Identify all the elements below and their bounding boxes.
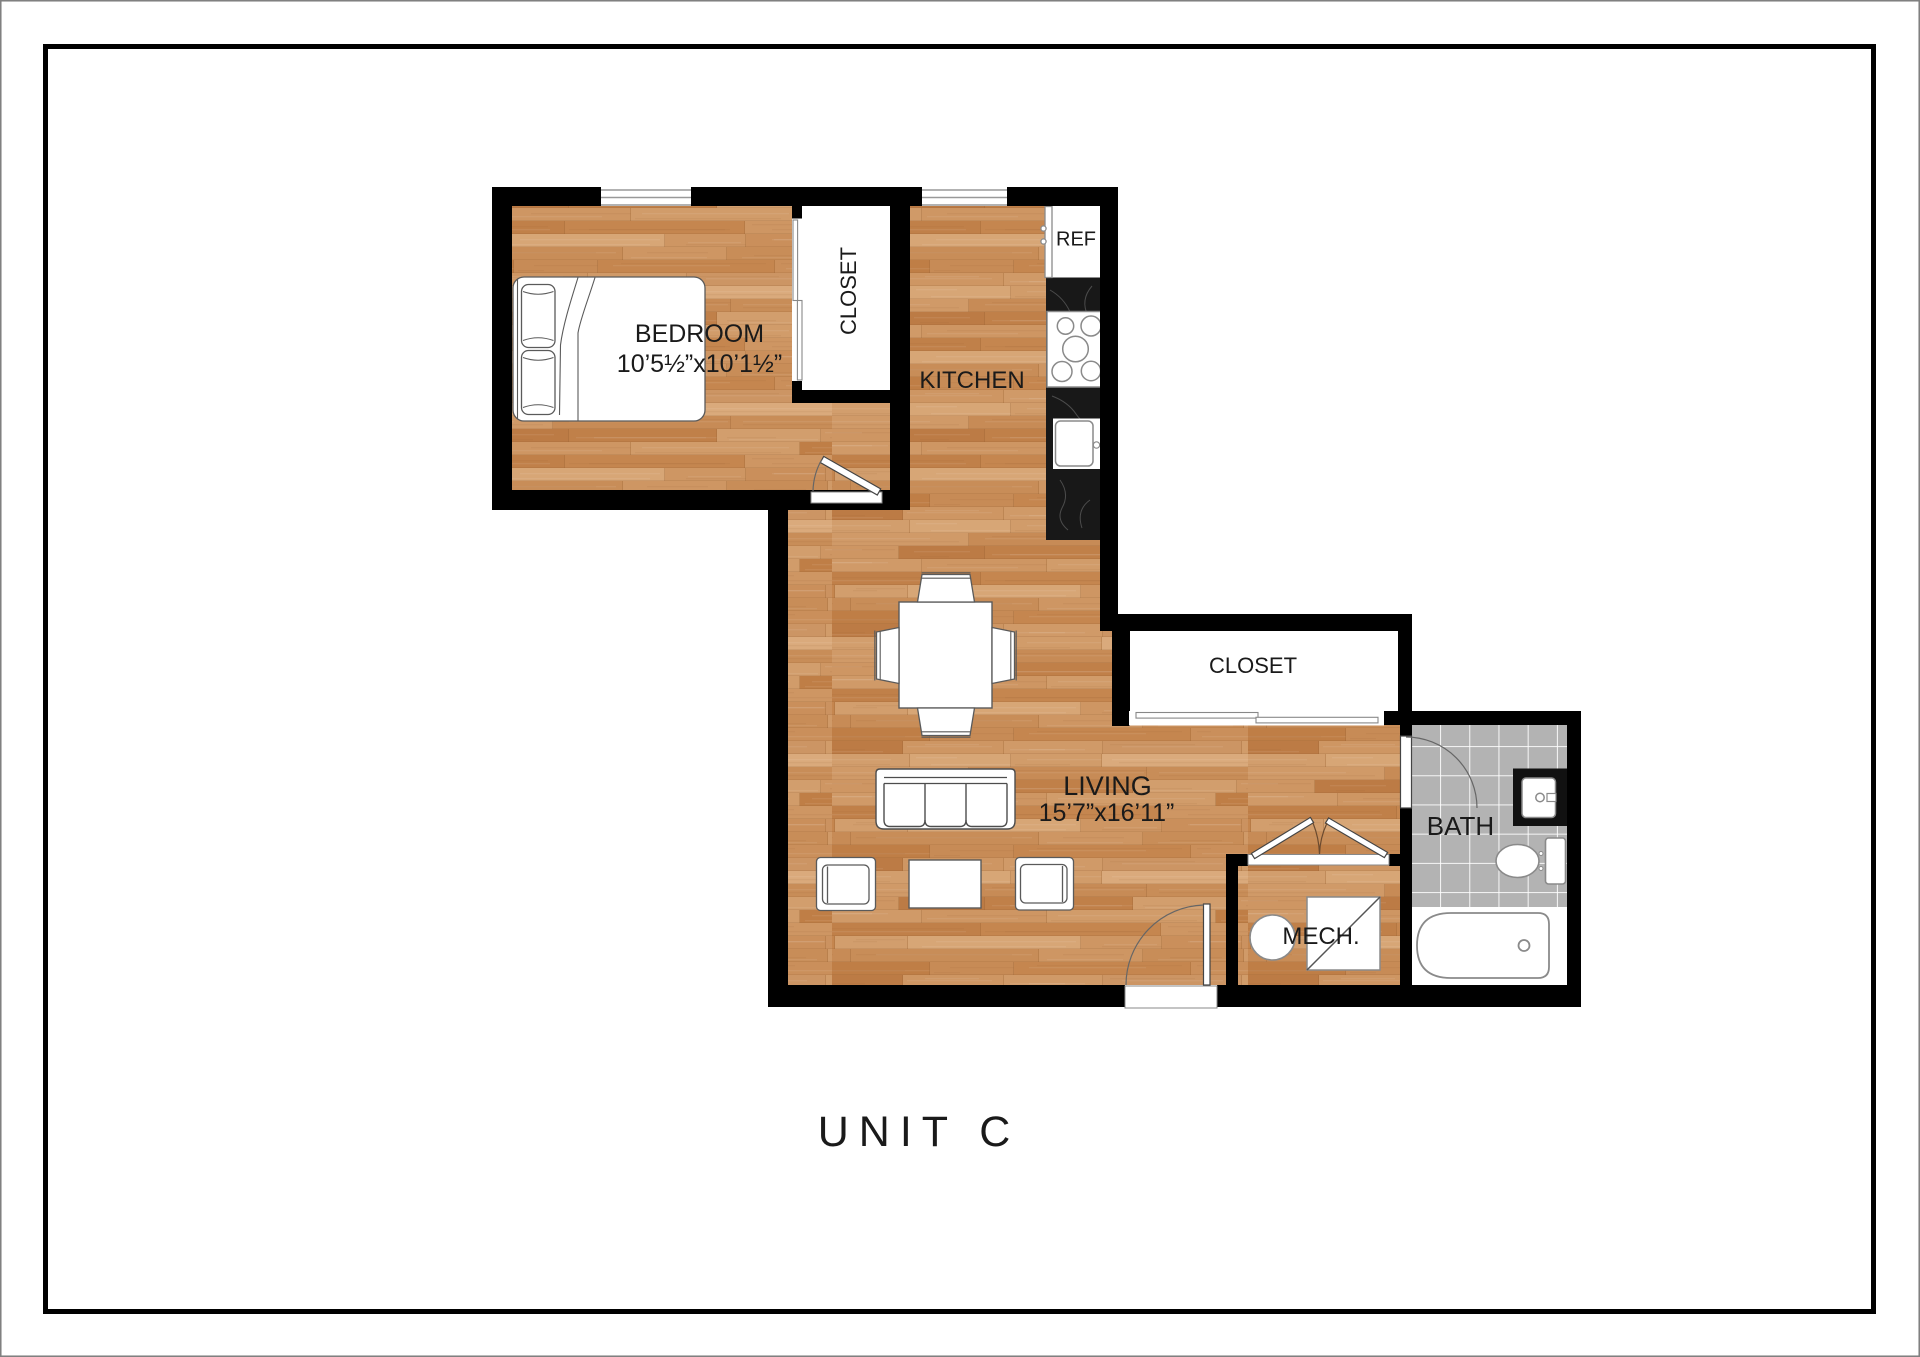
svg-text:REF: REF bbox=[1056, 229, 1096, 251]
svg-text:BEDROOM: BEDROOM bbox=[635, 320, 764, 348]
svg-text:CLOSET: CLOSET bbox=[1209, 653, 1297, 678]
svg-text:MECH.: MECH. bbox=[1282, 923, 1359, 950]
svg-text:15’7”x16’11”: 15’7”x16’11” bbox=[1039, 799, 1175, 827]
svg-text:BATH: BATH bbox=[1427, 811, 1494, 841]
svg-text:CLOSET: CLOSET bbox=[836, 247, 861, 335]
svg-text:LIVING: LIVING bbox=[1063, 771, 1152, 801]
svg-text:10’5½”x10’1½”: 10’5½”x10’1½” bbox=[617, 350, 782, 378]
svg-text:KITCHEN: KITCHEN bbox=[919, 367, 1024, 394]
svg-text:UNIT C: UNIT C bbox=[818, 1108, 1021, 1156]
